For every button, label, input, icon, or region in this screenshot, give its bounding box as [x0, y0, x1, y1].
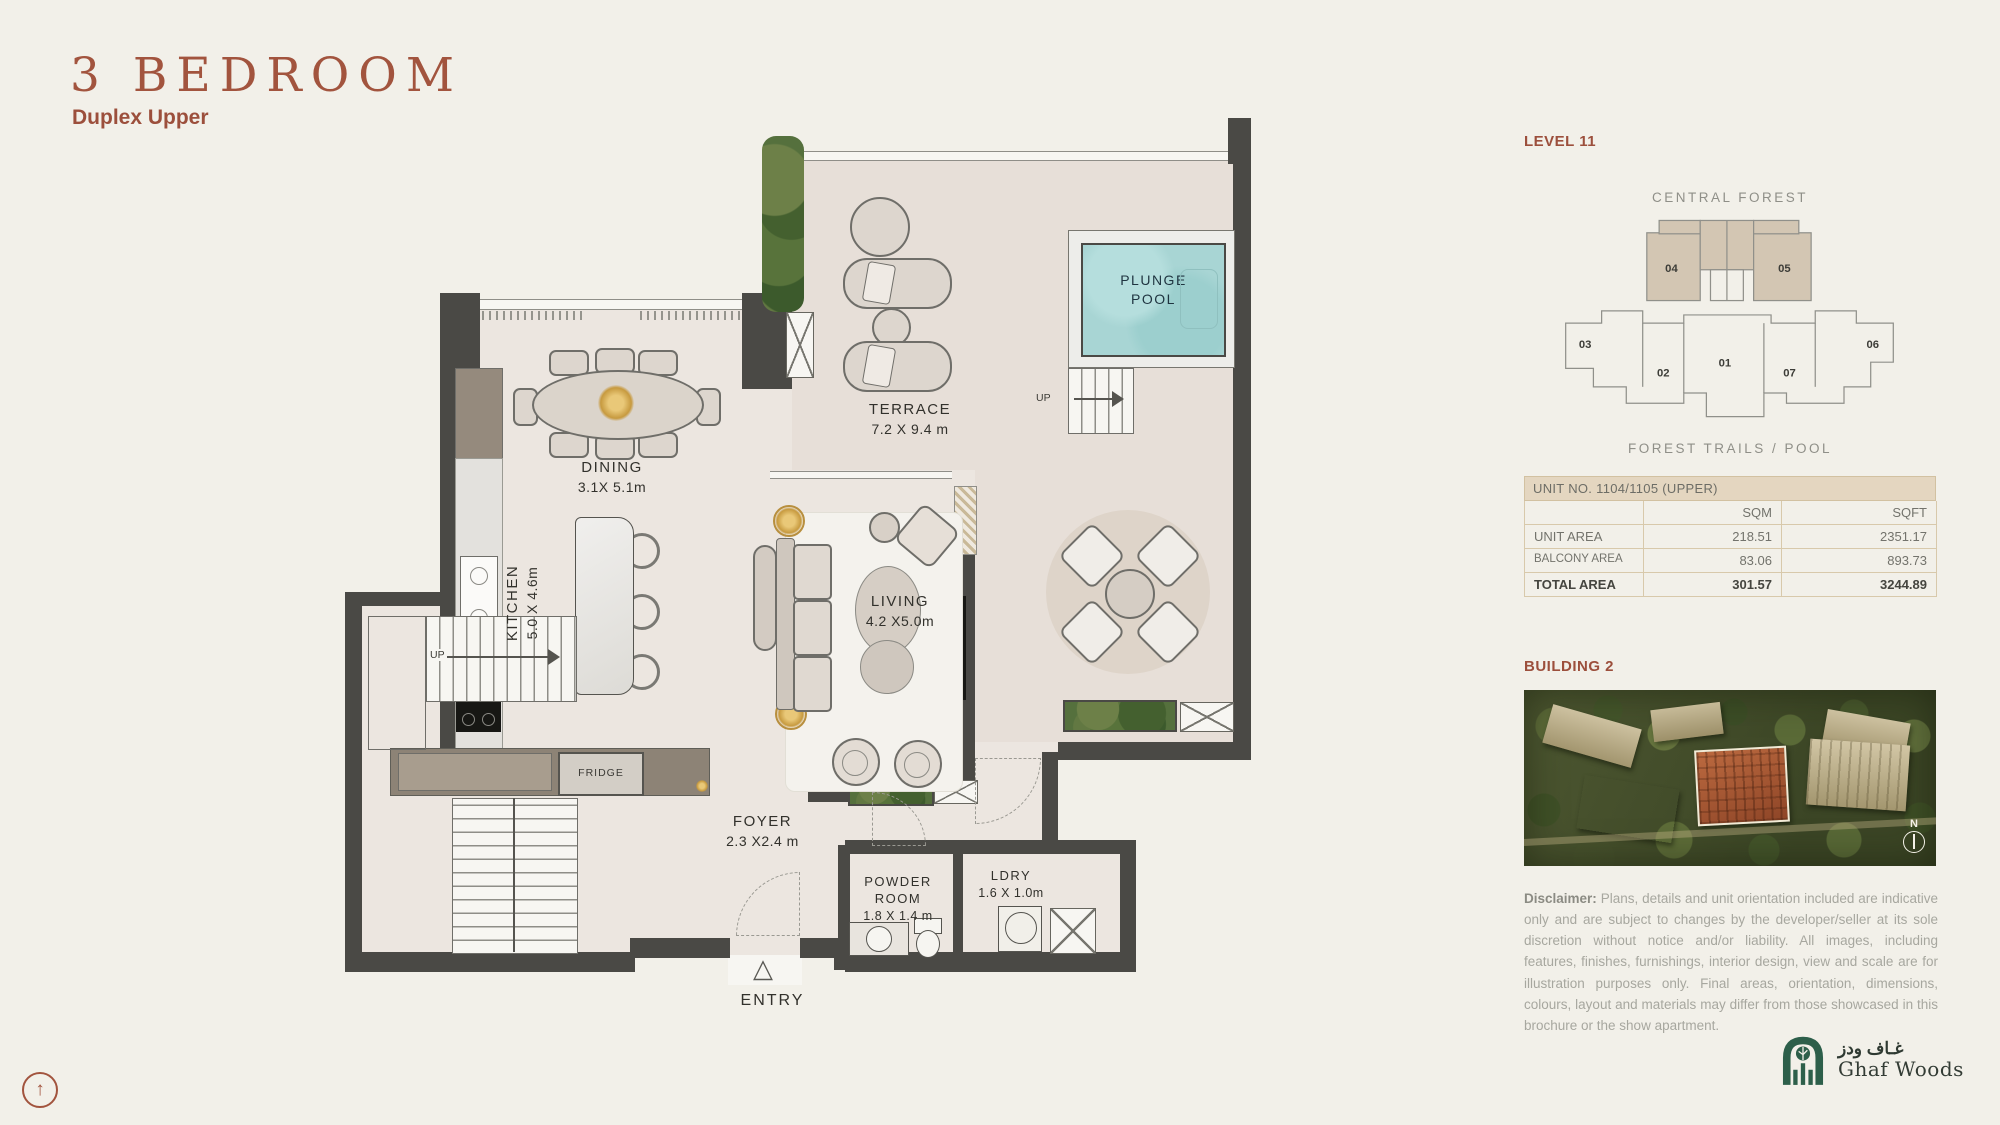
lower-cabinet	[398, 753, 552, 791]
kitchen-cabinets	[455, 368, 503, 460]
ldry-label: LDRY 1.6 X 1.0m	[960, 868, 1062, 901]
up-label-pool: UP	[1036, 392, 1051, 404]
col-sqft: SQFT	[1782, 501, 1937, 525]
ghaf-woods-logo: غـاف ودز Ghaf Woods	[1778, 1034, 1964, 1086]
building-render	[1650, 702, 1723, 742]
forest-trails-label: FOREST TRAILS / POOL	[1524, 441, 1936, 456]
unit-number: 03	[1579, 339, 1592, 351]
building-render	[1542, 704, 1641, 768]
kitchen-label: KITCHEN5.0 X 4.6m	[503, 538, 543, 668]
foyer-chair	[894, 740, 942, 788]
stairs-lower-run	[452, 798, 578, 954]
lounger-cushion	[862, 261, 897, 305]
floor-lamp	[773, 505, 805, 537]
wall-segment	[345, 952, 635, 972]
stairs-chevron	[548, 649, 560, 665]
curtain-hatch	[482, 311, 584, 320]
wall-segment	[1233, 150, 1251, 760]
table-row-total: TOTAL AREA 301.57 3244.89	[1524, 573, 1936, 597]
sofa-cushion	[793, 600, 832, 656]
sink-basin	[470, 567, 488, 585]
central-forest-label: CENTRAL FOREST	[1524, 190, 1936, 205]
table-cell	[1525, 501, 1644, 525]
fridge: FRIDGE	[558, 752, 644, 796]
row-label: BALCONY AREA	[1525, 549, 1644, 573]
wall-segment	[834, 938, 850, 970]
ldry-shaft	[1050, 908, 1096, 954]
plunge-pool: PLUNGE POOL	[1081, 243, 1226, 357]
wall-segment	[630, 938, 730, 958]
unit-number: 01	[1719, 357, 1732, 369]
building-label: BUILDING 2	[1524, 658, 1614, 675]
washer-drum	[1005, 912, 1037, 944]
unit-number: 07	[1783, 368, 1796, 380]
unit-number: 02	[1657, 368, 1670, 380]
row-sqft: 3244.89	[1782, 573, 1937, 597]
fridge-label: FRIDGE	[578, 767, 624, 779]
row-sqm: 301.57	[1644, 573, 1782, 597]
row-sqm: 218.51	[1644, 525, 1782, 549]
keyplan-unit-05-step	[1754, 220, 1799, 233]
row-label: UNIT AREA	[1525, 525, 1644, 549]
compass-dial	[1903, 831, 1925, 853]
entry-label: ENTRY	[710, 990, 835, 1012]
terrace-parapet	[800, 151, 1233, 161]
chandelier	[598, 385, 634, 421]
basin	[866, 926, 892, 952]
building-render	[1806, 739, 1910, 812]
building-aerial-image: N	[1524, 690, 1936, 866]
foyer-chair	[832, 738, 880, 786]
wall-segment	[345, 592, 362, 972]
disclaimer-text: Disclaimer: Plans, details and unit orie…	[1524, 888, 1938, 1037]
stairs-rail	[513, 798, 515, 952]
table-row: BALCONY AREA 83.06 893.73	[1524, 549, 1936, 573]
up-label-stairs: UP	[428, 649, 447, 661]
table-row: UNIT AREA 218.51 2351.17	[1524, 525, 1936, 549]
row-sqft: 893.73	[1782, 549, 1937, 573]
wall-segment	[1042, 752, 1058, 852]
up-arrow-button[interactable]: ↑	[22, 1072, 58, 1108]
keyplan-unit-04-step	[1659, 220, 1700, 233]
curtain-hatch	[640, 311, 742, 320]
table-title: UNIT NO. 1104/1105 (UPPER)	[1524, 476, 1936, 501]
level-label: LEVEL 11	[1524, 133, 1596, 150]
area-table: UNIT NO. 1104/1105 (UPPER) SQM SQFT UNIT…	[1524, 476, 1936, 597]
powder-room-label: POWDER ROOM 1.8 X 1.4 m	[845, 874, 951, 924]
lounger-cushion	[862, 344, 897, 388]
row-sqft: 2351.17	[1782, 525, 1937, 549]
terrace-label: TERRACE7.2 X 9.4 m	[830, 400, 990, 439]
chair-seat	[904, 752, 930, 778]
pool-steps	[1180, 269, 1218, 329]
pouf	[869, 512, 900, 543]
wall-segment	[1228, 118, 1251, 164]
logo-arabic: غـاف ودز	[1838, 1039, 1964, 1059]
col-sqm: SQM	[1644, 501, 1782, 525]
sofa-chaise	[753, 545, 777, 651]
toilet-bowl	[916, 930, 940, 958]
dining-label: DINING3.1X 5.1m	[538, 458, 686, 497]
disclaimer-label: Disclaimer:	[1524, 891, 1597, 906]
compass-n: N	[1902, 818, 1926, 830]
pool-stairs	[1068, 368, 1134, 434]
compass: N	[1902, 818, 1926, 853]
outdoor-table	[1105, 569, 1155, 619]
dining-window	[478, 299, 742, 310]
sofa-cushion	[793, 544, 832, 600]
lounger	[843, 341, 952, 392]
wall-segment	[1058, 742, 1251, 760]
row-label: TOTAL AREA	[1525, 573, 1644, 597]
compass-needle	[1913, 834, 1915, 849]
terrace-door	[786, 312, 814, 378]
living-label: LIVING4.2 X5.0m	[828, 592, 972, 631]
unit-number: 04	[1665, 263, 1678, 275]
burner	[482, 713, 495, 726]
coffee-table-small	[860, 640, 914, 694]
chair-seat	[842, 750, 868, 776]
unit-number: 05	[1778, 263, 1791, 275]
sofa-cushion	[793, 656, 832, 712]
ghaf-woods-icon	[1778, 1034, 1828, 1086]
table-header-row: SQM SQFT	[1524, 501, 1936, 525]
terrace-table	[850, 197, 910, 257]
wall-segment	[345, 592, 445, 606]
foyer-label: FOYER2.3 X2.4 m	[700, 812, 825, 851]
lounger	[843, 258, 952, 309]
terrace-planter	[1063, 700, 1177, 732]
entry-triangle: △	[753, 955, 773, 981]
kitchen-island	[575, 517, 634, 695]
row-sqm: 83.06	[1644, 549, 1782, 573]
hedge	[762, 136, 804, 312]
burner	[462, 713, 475, 726]
ac-unit	[1180, 702, 1234, 732]
logo-wordmark: Ghaf Woods	[1838, 1058, 1964, 1081]
highlighted-building	[1694, 746, 1790, 827]
pool-stairs-chevron	[1112, 391, 1124, 407]
brochure-page: 3 BEDROOM Duplex Upper	[0, 0, 2000, 1125]
key-plan-diagram: 04 05 03 02 01 07 06	[1540, 212, 1920, 422]
wall-segment	[440, 293, 480, 371]
living-slider	[770, 471, 952, 479]
unit-number: 06	[1866, 339, 1879, 351]
shaft	[368, 616, 426, 750]
